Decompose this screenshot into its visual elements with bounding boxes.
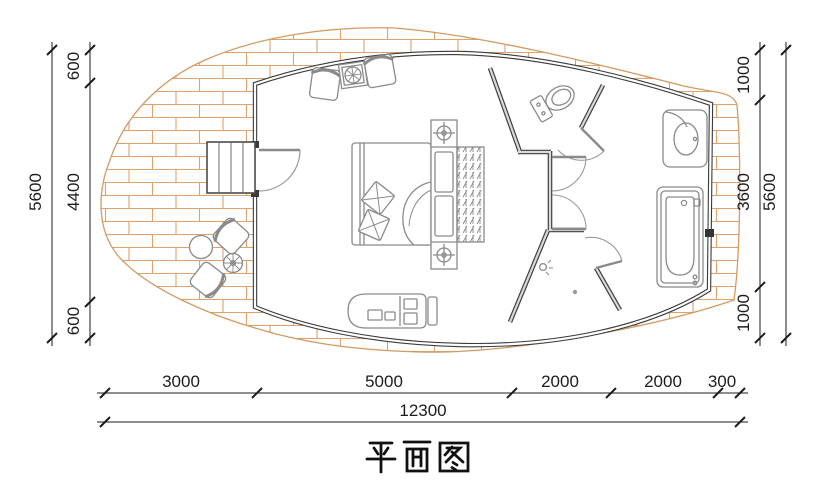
floor-drain [573, 290, 577, 294]
drawing-title: 平面图 [367, 438, 470, 476]
floor-plan-page: 600 4400 600 5600 1000 3600 1000 5600 30… [0, 0, 837, 496]
outdoor-parasol-table [223, 253, 243, 273]
dim-bottom-total: 12300 [399, 401, 446, 420]
dim-bottom-seg-1: 5000 [365, 372, 403, 391]
dim-left-total: 5600 [26, 173, 45, 211]
wardrobe [457, 147, 484, 242]
dim-right-total: 5600 [760, 173, 779, 211]
dim-bottom-seg-4: 300 [708, 372, 736, 391]
double-bed [352, 143, 431, 245]
entry-stairs [207, 142, 255, 193]
dim-bottom-seg-0: 3000 [162, 372, 200, 391]
dim-right-seg-0: 1000 [734, 56, 753, 94]
dim-right-seg-1: 3600 [734, 173, 753, 211]
dim-left-seg-1: 4400 [64, 173, 83, 211]
dim-right-seg-2: 1000 [734, 294, 753, 332]
dim-bottom-seg-3: 2000 [644, 372, 682, 391]
floor-plan-drawing: 600 4400 600 5600 1000 3600 1000 5600 30… [0, 0, 837, 496]
outdoor-round-table [190, 236, 213, 259]
dim-left-seg-0: 600 [64, 52, 83, 80]
title-text: 平面图 [368, 438, 470, 476]
dim-left-seg-2: 600 [64, 307, 83, 335]
armchair-right [363, 54, 398, 89]
dim-bottom-seg-2: 2000 [541, 372, 579, 391]
wall-joint [705, 229, 714, 237]
armchair-left [308, 67, 342, 101]
side-table [338, 61, 367, 88]
chaise-bench [348, 294, 437, 328]
